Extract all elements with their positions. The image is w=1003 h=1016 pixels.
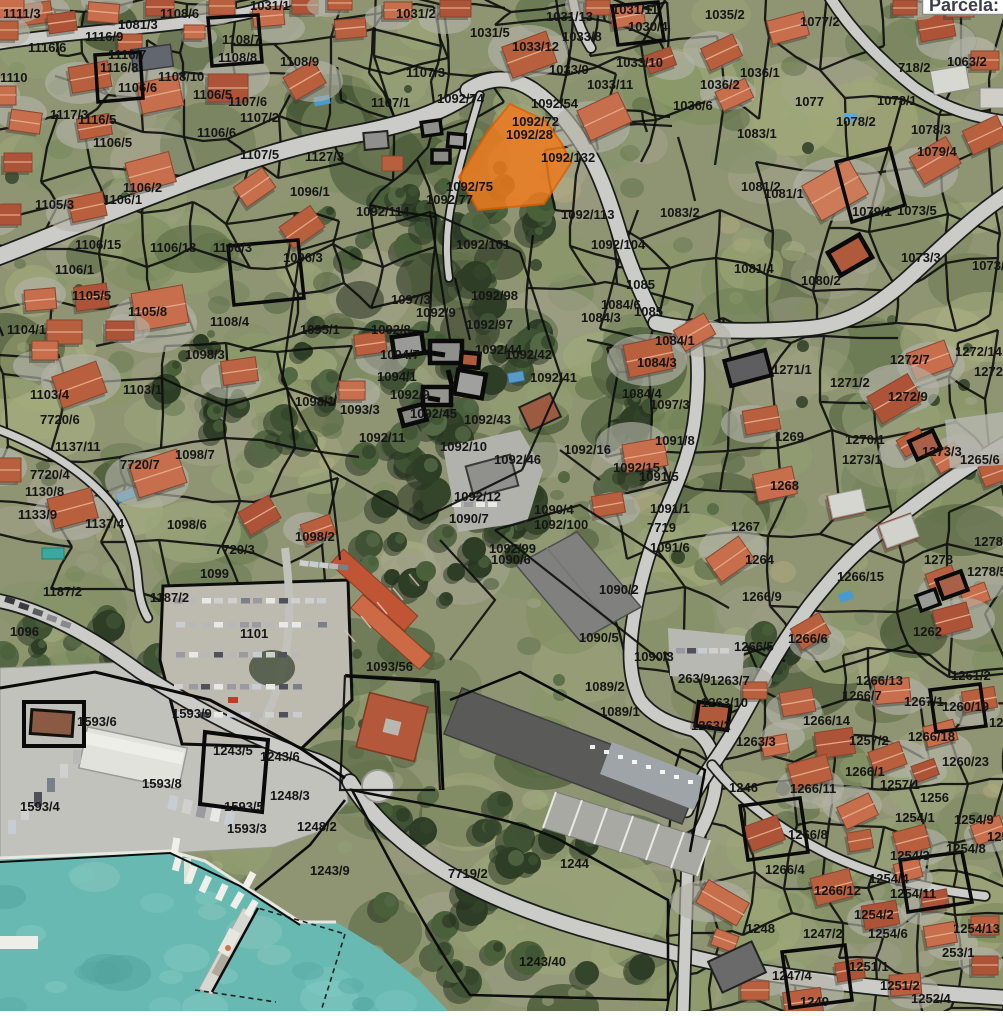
svg-text:1261/2: 1261/2 [951, 668, 991, 683]
svg-text:1031/13: 1031/13 [546, 9, 593, 24]
svg-text:718/2: 718/2 [898, 60, 931, 75]
svg-text:1272/15: 1272/15 [974, 364, 1003, 379]
svg-text:1593/3: 1593/3 [227, 821, 267, 836]
svg-text:1243/5: 1243/5 [213, 743, 253, 758]
svg-text:1083/2: 1083/2 [660, 205, 700, 220]
svg-text:1263/7: 1263/7 [710, 673, 750, 688]
svg-text:1593/9: 1593/9 [172, 706, 212, 721]
svg-text:1254/4: 1254/4 [869, 871, 910, 886]
svg-text:1030/4: 1030/4 [628, 19, 669, 34]
svg-text:1248/2: 1248/2 [297, 819, 337, 834]
svg-text:1266/1: 1266/1 [845, 764, 885, 779]
svg-text:1096/1: 1096/1 [290, 184, 330, 199]
svg-text:1249: 1249 [800, 994, 829, 1009]
svg-text:1254/8: 1254/8 [946, 841, 986, 856]
svg-text:1127/3: 1127/3 [305, 149, 344, 164]
svg-text:1254/9: 1254/9 [954, 812, 994, 827]
svg-text:1077: 1077 [795, 94, 824, 109]
svg-text:1092/10: 1092/10 [440, 439, 487, 454]
svg-text:1107/6: 1107/6 [228, 94, 267, 109]
svg-text:1254/6: 1254/6 [868, 926, 908, 941]
svg-text:1095/1: 1095/1 [300, 322, 340, 337]
svg-text:1260/1: 1260/1 [989, 715, 1003, 730]
svg-text:7719: 7719 [647, 520, 676, 535]
svg-text:1031/2: 1031/2 [396, 6, 436, 21]
svg-text:1254/1: 1254/1 [895, 810, 935, 825]
svg-text:1272/9: 1272/9 [888, 389, 928, 404]
svg-text:1084/1: 1084/1 [655, 333, 695, 348]
svg-text:1107/2: 1107/2 [240, 110, 279, 125]
svg-text:1085: 1085 [626, 277, 655, 292]
svg-text:1092/97: 1092/97 [466, 317, 513, 332]
svg-text:1078/3: 1078/3 [911, 122, 951, 137]
svg-text:1107/5: 1107/5 [240, 147, 279, 162]
svg-text:1092/132: 1092/132 [541, 150, 595, 165]
svg-text:1593/8: 1593/8 [142, 776, 182, 791]
svg-text:1092/28: 1092/28 [506, 127, 553, 142]
svg-text:1247/2: 1247/2 [803, 926, 843, 941]
svg-text:1243/40: 1243/40 [519, 954, 566, 969]
svg-text:1092/114: 1092/114 [356, 204, 410, 219]
svg-text:1036/6: 1036/6 [673, 98, 713, 113]
svg-text:1096: 1096 [10, 624, 39, 639]
svg-text:1265/6: 1265/6 [960, 452, 1000, 467]
svg-text:1092/113: 1092/113 [561, 207, 615, 222]
svg-text:1104/1: 1104/1 [7, 322, 46, 337]
svg-text:1278/6: 1278/6 [974, 534, 1003, 549]
svg-text:1108/10: 1108/10 [158, 69, 204, 84]
svg-text:1090/2: 1090/2 [599, 582, 639, 597]
svg-text:1273/1: 1273/1 [842, 452, 882, 467]
svg-text:1266/7: 1266/7 [842, 688, 882, 703]
svg-text:1108/6: 1108/6 [160, 6, 199, 21]
svg-text:1108/7: 1108/7 [222, 32, 261, 47]
svg-text:1094/1: 1094/1 [377, 369, 417, 384]
svg-text:1097/3: 1097/3 [650, 397, 690, 412]
svg-text:1092/42: 1092/42 [505, 347, 552, 362]
svg-text:1107/1: 1107/1 [371, 95, 410, 110]
svg-text:1092/98: 1092/98 [471, 288, 518, 303]
svg-text:1266/18: 1266/18 [908, 729, 955, 744]
svg-text:1031/11: 1031/11 [612, 2, 658, 17]
svg-text:1031/5: 1031/5 [470, 25, 510, 40]
svg-text:1108/9: 1108/9 [280, 54, 319, 69]
svg-text:7720/6: 7720/6 [40, 412, 80, 427]
svg-text:1036/1: 1036/1 [740, 65, 780, 80]
svg-text:1073/6: 1073/6 [972, 258, 1003, 273]
svg-text:1266/5: 1266/5 [734, 639, 774, 654]
svg-text:1254/11: 1254/11 [890, 886, 936, 901]
svg-text:1092/54: 1092/54 [531, 96, 579, 111]
svg-text:1266/15: 1266/15 [837, 569, 884, 584]
svg-text:1101: 1101 [240, 626, 268, 641]
svg-text:1278/5: 1278/5 [967, 564, 1003, 579]
svg-text:1092/46: 1092/46 [494, 452, 541, 467]
svg-text:253/1: 253/1 [942, 945, 975, 960]
svg-text:1092/77: 1092/77 [426, 192, 473, 207]
svg-text:1251/1: 1251/1 [849, 959, 889, 974]
svg-text:1273/3: 1273/3 [922, 444, 962, 459]
svg-text:1084/3: 1084/3 [581, 310, 621, 325]
svg-text:1033/12: 1033/12 [512, 39, 559, 54]
svg-text:1108/8: 1108/8 [218, 50, 257, 65]
svg-text:1248/3: 1248/3 [270, 788, 310, 803]
svg-text:1033/10: 1033/10 [616, 55, 663, 70]
svg-text:1106/1: 1106/1 [103, 192, 142, 207]
svg-text:1092/41: 1092/41 [530, 370, 577, 385]
svg-text:1081/4: 1081/4 [734, 261, 775, 276]
svg-text:1260/19: 1260/19 [942, 699, 989, 714]
svg-text:1092/43: 1092/43 [464, 412, 511, 427]
svg-text:1092/9: 1092/9 [390, 387, 430, 402]
svg-text:1107/3: 1107/3 [406, 65, 445, 80]
svg-text:1103/1: 1103/1 [123, 382, 162, 397]
svg-text:1085: 1085 [634, 304, 663, 319]
svg-text:1092/12: 1092/12 [454, 489, 501, 504]
svg-text:1078/2: 1078/2 [836, 114, 876, 129]
svg-text:263/9: 263/9 [678, 671, 711, 686]
svg-text:1081/1: 1081/1 [764, 186, 804, 201]
svg-text:1243/6: 1243/6 [260, 749, 300, 764]
svg-text:1106/3: 1106/3 [213, 240, 252, 255]
svg-text:1091/1: 1091/1 [650, 501, 690, 516]
svg-text:1079/1: 1079/1 [852, 204, 892, 219]
svg-text:1262: 1262 [913, 624, 942, 639]
svg-text:1073/5: 1073/5 [897, 203, 937, 218]
svg-text:1187/2: 1187/2 [150, 590, 189, 605]
svg-text:1098/3: 1098/3 [185, 347, 225, 362]
svg-text:1137/4: 1137/4 [85, 516, 125, 531]
svg-text:1089/1: 1089/1 [600, 704, 640, 719]
svg-text:1272/14: 1272/14 [955, 344, 1003, 359]
svg-text:1270/1: 1270/1 [845, 432, 885, 447]
svg-text:1081/3: 1081/3 [118, 17, 158, 32]
svg-text:1593/4: 1593/4 [20, 799, 61, 814]
svg-text:1106/5: 1106/5 [193, 87, 232, 102]
svg-text:1116/6: 1116/6 [28, 40, 66, 55]
svg-text:1137/11: 1137/11 [55, 439, 101, 454]
svg-text:1090/3: 1090/3 [634, 649, 674, 664]
svg-text:Parcela:: Parcela: [929, 0, 999, 15]
svg-text:1092/74: 1092/74 [437, 91, 485, 106]
svg-text:1244: 1244 [560, 856, 590, 871]
svg-text:1106/6: 1106/6 [118, 80, 157, 95]
svg-text:1033/11: 1033/11 [587, 77, 633, 92]
svg-text:1263/2: 1263/2 [691, 718, 731, 733]
svg-text:1093/56: 1093/56 [366, 659, 413, 674]
svg-text:1263/3: 1263/3 [736, 734, 776, 749]
svg-text:1268: 1268 [770, 478, 799, 493]
svg-text:1105/5: 1105/5 [72, 288, 111, 303]
svg-text:1033/8: 1033/8 [562, 29, 602, 44]
svg-text:1091/5: 1091/5 [639, 469, 679, 484]
svg-text:1084/3: 1084/3 [637, 355, 677, 370]
svg-text:1096/3: 1096/3 [283, 250, 323, 265]
svg-text:1092/45: 1092/45 [410, 406, 457, 421]
svg-text:1098/1: 1098/1 [295, 394, 335, 409]
svg-text:1130/8: 1130/8 [25, 484, 64, 499]
svg-text:1278: 1278 [924, 552, 953, 567]
svg-text:1254/3: 1254/3 [890, 848, 930, 863]
svg-text:1090/4: 1090/4 [534, 502, 575, 517]
svg-text:1098/6: 1098/6 [167, 517, 207, 532]
svg-text:1260/23: 1260/23 [942, 754, 989, 769]
svg-text:1092/16: 1092/16 [564, 442, 611, 457]
svg-text:1257/2: 1257/2 [849, 733, 889, 748]
svg-text:1264: 1264 [745, 552, 775, 567]
svg-text:1116/5: 1116/5 [78, 112, 116, 127]
svg-text:1097/3: 1097/3 [391, 292, 431, 307]
svg-text:1269: 1269 [775, 429, 804, 444]
svg-text:1266/8: 1266/8 [788, 827, 828, 842]
svg-text:1267/1: 1267/1 [904, 694, 944, 709]
svg-text:1254/13: 1254/13 [953, 921, 1000, 936]
svg-text:1272/7: 1272/7 [890, 352, 930, 367]
svg-text:1266/6: 1266/6 [788, 631, 828, 646]
svg-text:1255: 1255 [987, 829, 1003, 844]
svg-text:1099: 1099 [200, 566, 229, 581]
svg-text:1103/4: 1103/4 [30, 387, 70, 402]
svg-text:1092/101: 1092/101 [456, 237, 510, 252]
svg-text:1105/8: 1105/8 [128, 304, 167, 319]
svg-text:1092/9: 1092/9 [416, 305, 456, 320]
svg-text:1091/8: 1091/8 [655, 433, 695, 448]
svg-text:1033/9: 1033/9 [549, 62, 589, 77]
svg-text:1036/2: 1036/2 [700, 77, 740, 92]
svg-text:1105/3: 1105/3 [35, 197, 74, 212]
svg-text:1246: 1246 [729, 780, 758, 795]
svg-text:1091/6: 1091/6 [650, 540, 690, 555]
svg-text:1106/6: 1106/6 [197, 125, 236, 140]
svg-text:1111/3: 1111/3 [3, 6, 41, 21]
svg-text:1063/2: 1063/2 [947, 54, 987, 69]
svg-text:1089/2: 1089/2 [585, 679, 625, 694]
svg-text:1243/9: 1243/9 [310, 863, 350, 878]
svg-text:1110: 1110 [0, 70, 28, 85]
svg-text:1079/4: 1079/4 [917, 144, 958, 159]
svg-text:1098/7: 1098/7 [175, 447, 215, 462]
svg-text:1078/1: 1078/1 [877, 93, 917, 108]
svg-text:1116/8: 1116/8 [100, 60, 138, 75]
svg-text:1108/4: 1108/4 [210, 314, 250, 329]
svg-text:1092/8: 1092/8 [371, 322, 411, 337]
svg-text:7720/4: 7720/4 [30, 467, 71, 482]
svg-text:1092/104: 1092/104 [591, 237, 646, 252]
svg-text:1077/2: 1077/2 [800, 14, 840, 29]
svg-text:1271/1: 1271/1 [772, 362, 812, 377]
svg-text:1092/72: 1092/72 [512, 114, 559, 129]
svg-text:1266/4: 1266/4 [765, 862, 806, 877]
svg-text:1093/3: 1093/3 [340, 402, 380, 417]
svg-text:1106/1: 1106/1 [55, 262, 94, 277]
svg-text:7720/3: 7720/3 [215, 542, 255, 557]
svg-text:7719/2: 7719/2 [448, 866, 488, 881]
svg-text:1266/11: 1266/11 [790, 781, 836, 796]
svg-text:1106/5: 1106/5 [93, 135, 132, 150]
svg-text:1256: 1256 [920, 790, 949, 805]
svg-text:1263/10: 1263/10 [701, 695, 748, 710]
svg-text:1187/2: 1187/2 [43, 584, 82, 599]
svg-text:1090/6: 1090/6 [491, 552, 531, 567]
svg-text:1593/5: 1593/5 [224, 799, 264, 814]
svg-text:1106/13: 1106/13 [150, 240, 196, 255]
svg-text:1098/2: 1098/2 [295, 529, 335, 544]
svg-text:1133/9: 1133/9 [18, 507, 57, 522]
svg-text:1593/6: 1593/6 [77, 714, 117, 729]
svg-text:1247/4: 1247/4 [772, 968, 813, 983]
svg-text:1271/2: 1271/2 [830, 375, 870, 390]
svg-text:1090/7: 1090/7 [449, 511, 489, 526]
svg-text:1035/2: 1035/2 [705, 7, 745, 22]
svg-text:1092/100: 1092/100 [534, 517, 588, 532]
svg-text:1254/2: 1254/2 [854, 907, 894, 922]
svg-text:1266/14: 1266/14 [803, 713, 851, 728]
svg-text:1266/13: 1266/13 [856, 673, 903, 688]
svg-text:1266/12: 1266/12 [814, 883, 861, 898]
svg-text:1092/11: 1092/11 [359, 430, 405, 445]
svg-text:1267: 1267 [731, 519, 760, 534]
svg-text:7720/7: 7720/7 [120, 457, 160, 472]
svg-text:1106/15: 1106/15 [75, 237, 121, 252]
svg-text:1252/4: 1252/4 [911, 991, 952, 1006]
svg-text:1080/2: 1080/2 [801, 273, 841, 288]
svg-text:1094/7: 1094/7 [380, 347, 420, 362]
svg-text:1266/9: 1266/9 [742, 589, 782, 604]
svg-text:1248: 1248 [746, 921, 775, 936]
svg-text:1083/1: 1083/1 [737, 126, 777, 141]
svg-text:1090/5: 1090/5 [579, 630, 619, 645]
svg-text:1031/1: 1031/1 [250, 0, 290, 13]
svg-text:1073/3: 1073/3 [901, 250, 941, 265]
svg-text:1257/1: 1257/1 [880, 777, 920, 792]
